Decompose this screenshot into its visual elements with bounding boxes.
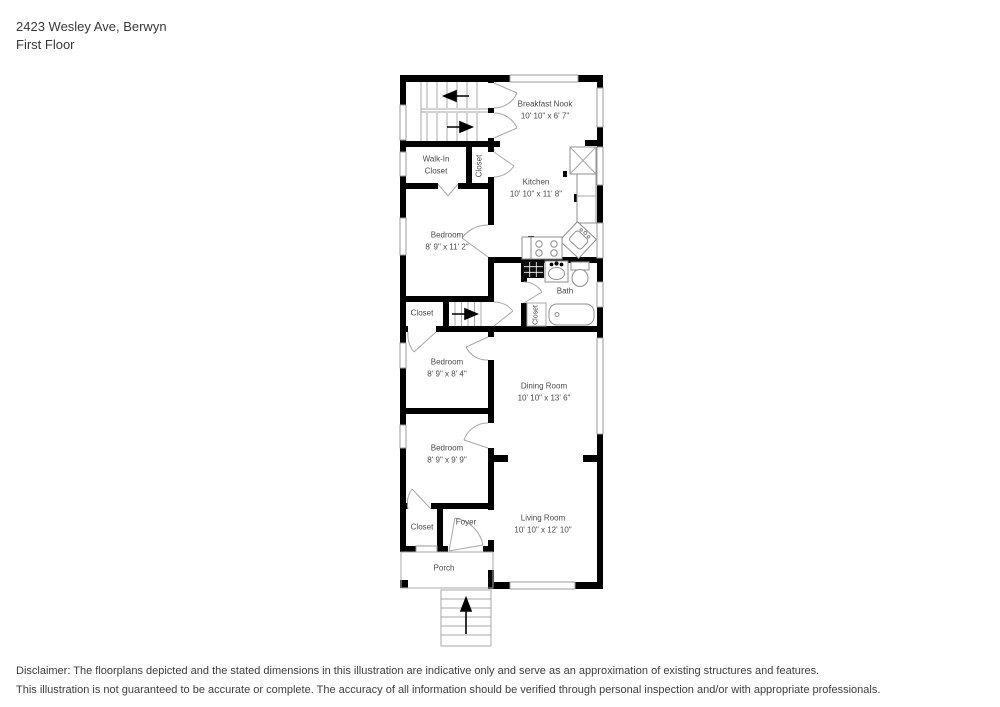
stairs-right-arrow-icon: [452, 309, 477, 319]
room-label-porch: Porch: [434, 562, 455, 574]
staircase-middle: [452, 302, 481, 326]
bathtub-icon: [549, 304, 594, 325]
room-label-closet-top: Closet: [473, 155, 485, 178]
room-label-living-room: Living Room 10' 10" x 12' 10": [514, 513, 571, 536]
room-label-closet-bottom: Closet: [411, 521, 434, 533]
room-label-closet-mid: Closet: [411, 307, 434, 319]
kitchen-fixtures: [522, 147, 596, 259]
room-label-bath: Bath: [557, 285, 573, 297]
disclaimer: Disclaimer: The floorplans depicted and …: [16, 662, 880, 699]
address-text: 2423 Wesley Ave, Berwyn: [16, 18, 167, 36]
page-title: 2423 Wesley Ave, Berwyn First Floor: [16, 18, 167, 53]
disclaimer-line-1: Disclaimer: The floorplans depicted and …: [16, 662, 880, 681]
room-label-foyer: Foyer: [456, 516, 476, 528]
room-label-breakfast-nook: Breakfast Nook 10' 10" x 6' 7": [518, 99, 573, 122]
staircase-top: [421, 82, 488, 141]
floor-plan-page: 2423 Wesley Ave, Berwyn First Floor: [0, 0, 1000, 707]
entry-steps: [441, 590, 491, 646]
counter: [577, 174, 596, 223]
room-label-bath-closet: Closet: [530, 305, 542, 325]
stairs-left-arrow-icon: [444, 91, 469, 101]
refrigerator-icon: [570, 147, 596, 174]
kitchen-sink-icon: [560, 222, 597, 259]
room-label-bedroom-front: Bedroom 8' 9" x 11' 2": [425, 230, 468, 253]
stove-icon: [522, 237, 562, 259]
room-label-walk-in-closet: Walk-In Closet: [423, 154, 450, 177]
bifold-door-icon: [438, 184, 458, 196]
disclaimer-line-2: This illustration is not guaranteed to b…: [16, 681, 880, 700]
floor-text: First Floor: [16, 36, 167, 54]
room-label-bedroom-rear: Bedroom 8' 9" x 9' 9": [427, 443, 466, 466]
room-label-kitchen: Kitchen 10' 10" x 11' 8": [510, 177, 562, 200]
bathroom-sink-icon: [545, 261, 568, 282]
room-label-bedroom-middle: Bedroom 8' 9" x 8' 4": [427, 357, 466, 380]
toilet-icon: [571, 262, 589, 287]
stairs-right-arrow-icon: [447, 122, 472, 132]
steps-up-arrow-icon: [461, 598, 471, 634]
shower-grate-icon: [523, 261, 544, 278]
room-label-dining-room: Dining Room 10' 10" x 13' 6": [518, 381, 571, 404]
